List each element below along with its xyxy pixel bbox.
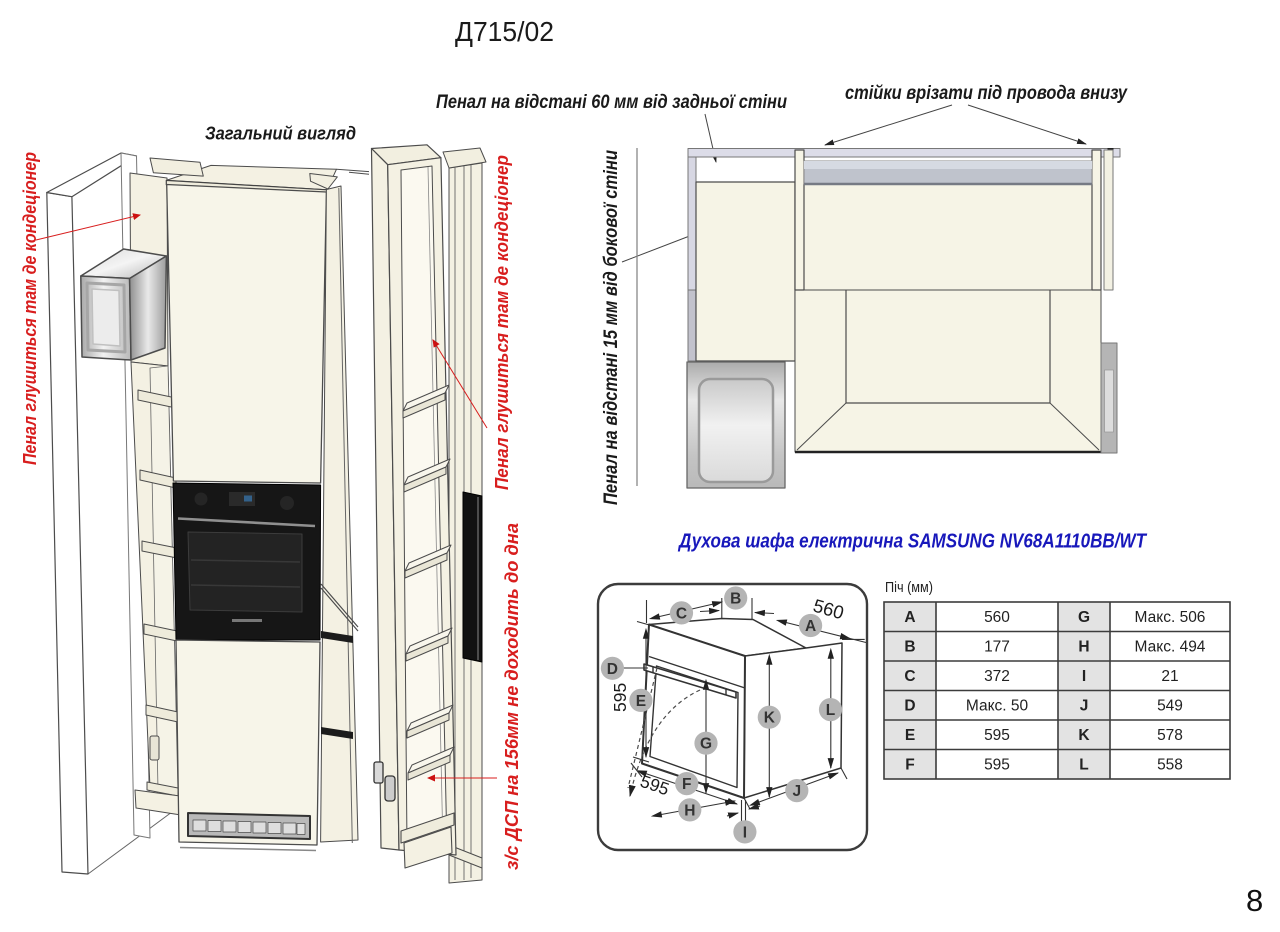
svg-text:595: 595 [610,683,630,712]
svg-text:595: 595 [984,727,1010,744]
svg-text:21: 21 [1161,668,1178,685]
svg-text:Пенал глушиться там де кондец: Пенал глушиться там де кондеціонер [492,155,512,490]
svg-text:560: 560 [984,609,1010,626]
svg-text:E: E [636,693,646,710]
svg-text:J: J [1080,698,1089,715]
svg-text:D: D [607,661,618,678]
svg-text:C: C [904,668,915,685]
svg-text:558: 558 [1157,757,1183,774]
svg-text:стійки врізати під провода вни: стійки врізати під провода внизу [845,82,1128,104]
svg-text:F: F [682,776,691,793]
svg-text:H: H [684,802,695,819]
svg-text:I: I [1082,668,1086,685]
svg-text:549: 549 [1157,698,1183,715]
svg-text:L: L [1079,757,1088,774]
svg-text:G: G [700,736,712,753]
svg-text:з/с ДСП на 156мм не доходить д: з/с ДСП на 156мм не доходить до дна [502,523,522,870]
svg-text:578: 578 [1157,727,1183,744]
svg-text:B: B [904,639,915,656]
svg-text:Загальний вигляд: Загальний вигляд [205,123,356,144]
svg-text:C: C [676,605,687,622]
svg-text:Духова шафа електрична SAMSUNG: Духова шафа електрична SAMSUNG NV68A1110… [677,531,1147,553]
svg-text:372: 372 [984,668,1010,685]
svg-text:I: I [743,824,747,841]
svg-text:F: F [905,757,914,774]
svg-text:L: L [826,702,835,719]
svg-text:H: H [1078,639,1089,656]
svg-text:A: A [805,618,816,635]
svg-text:Макс. 494: Макс. 494 [1135,639,1206,656]
svg-text:Д715/02: Д715/02 [455,16,554,47]
svg-text:K: K [764,710,776,727]
svg-text:Пенал на відстані 60 мм від за: Пенал на відстані 60 мм від задньої стін… [436,91,787,113]
svg-text:Пенал глушиться там де кондец: Пенал глушиться там де кондеціонер [20,152,40,465]
svg-text:K: K [1078,727,1090,744]
svg-text:A: A [904,609,915,626]
svg-text:Макс. 50: Макс. 50 [966,698,1029,715]
svg-text:J: J [792,783,801,800]
svg-text:Макс. 506: Макс. 506 [1135,609,1206,626]
svg-text:E: E [905,727,915,744]
svg-text:D: D [904,698,915,715]
svg-text:Пенал на відстані 15 мм від бо: Пенал на відстані 15 мм від бокової стін… [601,150,622,505]
svg-text:8: 8 [1246,883,1263,918]
svg-text:Піч (мм): Піч (мм) [885,580,933,596]
svg-text:595: 595 [984,757,1010,774]
svg-text:177: 177 [984,639,1010,656]
svg-text:G: G [1078,609,1090,626]
svg-text:B: B [730,591,741,608]
